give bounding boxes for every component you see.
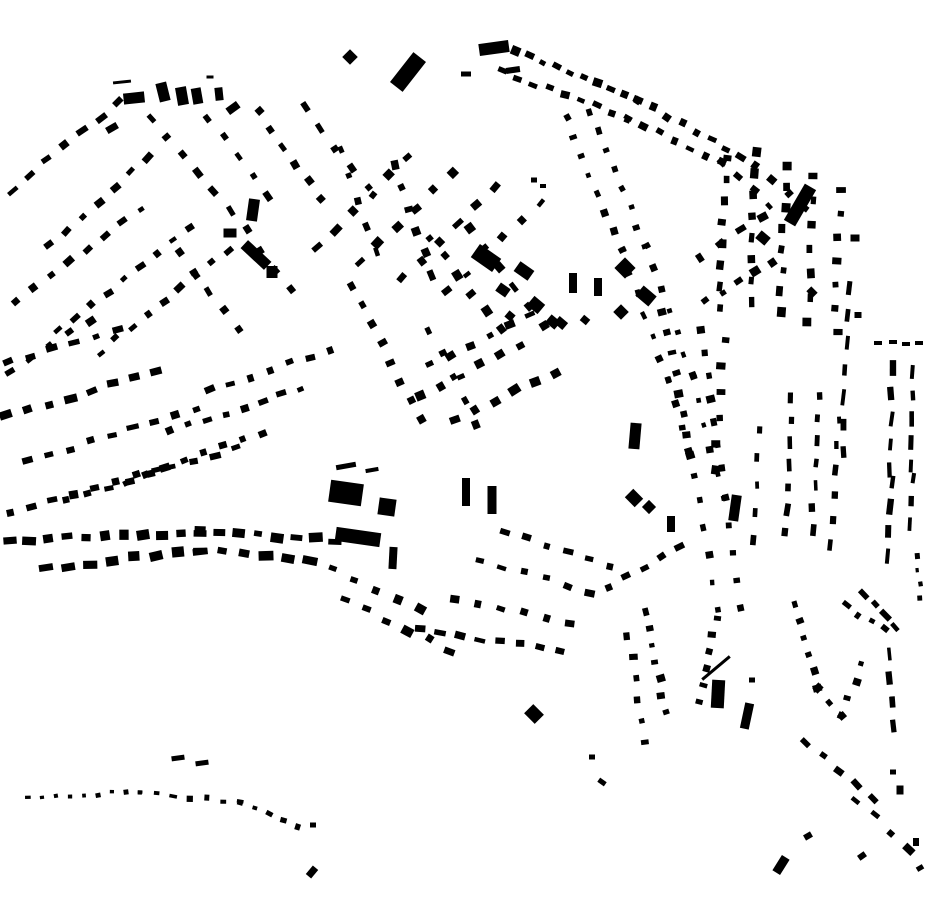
building <box>830 516 837 524</box>
building <box>242 224 252 235</box>
building <box>337 146 344 154</box>
building <box>214 87 223 101</box>
building <box>642 500 656 514</box>
building <box>870 810 880 819</box>
building <box>144 310 153 319</box>
building <box>646 625 654 632</box>
building <box>407 396 417 405</box>
building <box>913 838 919 846</box>
building <box>915 568 919 573</box>
building <box>716 362 726 370</box>
building <box>674 542 686 552</box>
building <box>354 197 362 206</box>
building <box>569 134 578 141</box>
building <box>241 240 272 270</box>
building <box>110 182 122 194</box>
building <box>178 149 188 159</box>
building <box>851 235 860 242</box>
building <box>618 185 626 193</box>
building <box>425 633 435 643</box>
building <box>474 600 482 609</box>
building <box>218 441 228 450</box>
building <box>802 318 811 327</box>
building <box>846 281 853 295</box>
building <box>710 580 715 586</box>
building <box>748 277 754 285</box>
building <box>507 383 521 397</box>
building <box>635 286 656 307</box>
building <box>733 577 740 583</box>
building <box>667 516 675 532</box>
building <box>730 550 736 556</box>
building <box>364 183 372 191</box>
building <box>783 183 790 191</box>
building <box>535 643 545 651</box>
building <box>280 817 288 824</box>
building <box>499 528 510 537</box>
building <box>887 462 892 477</box>
building <box>68 490 78 500</box>
building <box>266 366 274 375</box>
building <box>456 373 465 381</box>
building <box>169 236 177 244</box>
building <box>415 625 426 633</box>
building <box>706 372 712 379</box>
building <box>885 525 891 538</box>
building <box>710 418 718 427</box>
building <box>220 132 229 141</box>
building <box>232 528 245 538</box>
building <box>316 194 326 204</box>
building <box>585 172 591 178</box>
building <box>707 631 716 638</box>
building <box>509 282 519 293</box>
building <box>705 648 713 656</box>
building <box>25 796 31 799</box>
building <box>750 535 757 546</box>
building <box>735 224 747 235</box>
building <box>231 443 241 451</box>
building <box>7 186 19 197</box>
building <box>721 196 728 205</box>
building <box>350 576 359 584</box>
building <box>258 397 269 406</box>
building <box>670 136 679 145</box>
building <box>543 574 551 581</box>
building <box>290 159 301 170</box>
building <box>310 823 316 828</box>
building <box>204 794 209 800</box>
building <box>22 456 34 465</box>
building <box>171 546 184 557</box>
building <box>722 337 730 343</box>
building <box>638 121 649 132</box>
building <box>711 440 720 447</box>
building <box>202 416 212 424</box>
building <box>180 456 189 464</box>
building <box>542 614 551 623</box>
building <box>465 341 476 351</box>
building <box>416 414 427 425</box>
building <box>110 790 114 794</box>
building <box>165 426 175 436</box>
building <box>326 346 334 355</box>
building <box>300 101 311 113</box>
building <box>246 374 254 383</box>
building <box>715 607 721 613</box>
building <box>808 503 815 512</box>
building <box>550 368 562 380</box>
building <box>175 86 189 106</box>
building <box>382 168 395 181</box>
building <box>345 172 352 179</box>
building <box>833 766 845 777</box>
building <box>394 377 404 387</box>
building <box>885 671 893 685</box>
building <box>424 326 432 335</box>
building <box>918 581 923 586</box>
building <box>297 386 305 393</box>
building <box>639 718 645 724</box>
building <box>911 473 917 484</box>
building <box>222 411 230 418</box>
building <box>563 548 574 556</box>
building <box>840 389 846 406</box>
building <box>888 438 893 450</box>
building <box>390 52 426 92</box>
building <box>53 325 62 334</box>
building <box>105 556 119 567</box>
building <box>110 333 119 342</box>
building <box>397 183 405 191</box>
building <box>606 563 614 571</box>
building <box>377 497 396 516</box>
building <box>890 719 897 732</box>
building <box>246 198 260 221</box>
building <box>755 481 759 488</box>
building <box>795 617 804 625</box>
building <box>910 391 915 401</box>
building <box>632 224 640 231</box>
building <box>697 497 703 504</box>
building <box>262 190 273 202</box>
building <box>342 49 358 65</box>
building <box>858 588 870 600</box>
building <box>396 272 407 283</box>
building <box>373 247 380 257</box>
building <box>908 517 912 531</box>
building <box>135 261 147 272</box>
building <box>778 224 785 233</box>
building <box>827 539 833 551</box>
building <box>543 542 550 550</box>
building <box>836 187 846 193</box>
building <box>92 333 100 340</box>
building <box>70 313 81 324</box>
building <box>213 529 225 536</box>
building <box>474 637 486 644</box>
building <box>555 647 565 655</box>
building <box>577 153 585 160</box>
building <box>335 527 382 547</box>
building <box>655 354 664 363</box>
building <box>61 532 72 539</box>
building <box>607 109 616 118</box>
building <box>155 81 170 102</box>
building <box>655 127 664 136</box>
building <box>529 376 542 388</box>
building <box>889 696 895 708</box>
building <box>113 80 131 85</box>
building <box>66 446 75 454</box>
building <box>465 289 476 300</box>
building <box>270 532 284 543</box>
building <box>440 251 450 261</box>
building <box>25 353 36 362</box>
building <box>807 221 816 229</box>
building <box>915 553 920 559</box>
building <box>803 831 813 840</box>
building <box>123 91 145 104</box>
building <box>0 409 13 421</box>
building <box>692 128 701 137</box>
building <box>306 866 318 879</box>
building <box>388 547 397 569</box>
building <box>414 603 427 616</box>
building <box>489 181 501 193</box>
building <box>600 208 609 217</box>
building <box>355 257 366 267</box>
building <box>565 620 575 628</box>
building <box>832 464 839 475</box>
building <box>857 851 867 861</box>
building <box>613 304 629 320</box>
building <box>204 384 216 394</box>
building <box>915 341 923 345</box>
building <box>788 392 793 403</box>
building <box>240 404 250 413</box>
building <box>783 503 791 516</box>
building <box>678 118 687 128</box>
building <box>672 369 681 377</box>
building <box>657 308 667 317</box>
building <box>871 599 880 608</box>
building <box>733 276 743 285</box>
building <box>810 524 817 536</box>
building <box>58 139 69 150</box>
building <box>717 304 723 312</box>
building <box>275 389 286 397</box>
building <box>521 533 532 542</box>
building <box>199 448 207 456</box>
building <box>841 419 847 431</box>
building <box>142 151 154 164</box>
building <box>825 699 833 707</box>
building <box>192 167 204 179</box>
building <box>749 678 755 683</box>
building <box>589 755 595 760</box>
building <box>716 281 723 291</box>
building <box>11 297 21 307</box>
building <box>43 239 54 250</box>
building <box>112 325 124 334</box>
building <box>290 534 302 541</box>
building <box>908 435 913 450</box>
building <box>393 594 404 606</box>
building <box>842 600 852 610</box>
building <box>252 805 258 810</box>
building <box>305 354 316 362</box>
building <box>733 171 743 181</box>
building <box>371 586 380 595</box>
building <box>902 342 910 346</box>
building <box>814 480 818 490</box>
building <box>224 229 237 238</box>
building <box>426 269 436 281</box>
building <box>756 211 768 223</box>
building <box>381 617 391 626</box>
building <box>286 284 296 294</box>
building <box>765 202 773 210</box>
building <box>258 551 273 561</box>
building <box>832 282 838 288</box>
building <box>909 460 913 473</box>
building <box>916 864 925 872</box>
building <box>496 605 506 613</box>
building <box>656 674 666 683</box>
building <box>149 366 162 376</box>
building <box>402 152 412 162</box>
building <box>706 394 716 403</box>
building <box>170 410 181 420</box>
building <box>126 423 139 431</box>
building <box>778 245 785 254</box>
map-canvas <box>0 0 930 924</box>
building <box>874 341 882 345</box>
building <box>614 257 635 278</box>
building <box>377 338 388 348</box>
building <box>154 791 160 795</box>
building <box>831 305 839 312</box>
building <box>514 261 535 281</box>
building <box>817 392 823 400</box>
building <box>516 640 525 647</box>
building <box>97 349 105 357</box>
building <box>24 170 35 181</box>
building <box>584 589 595 598</box>
building <box>106 378 119 387</box>
building <box>414 390 426 402</box>
building <box>711 680 725 709</box>
building <box>82 793 86 797</box>
building <box>688 371 697 381</box>
building <box>685 145 694 152</box>
building <box>814 435 819 446</box>
building <box>169 794 177 799</box>
building <box>411 226 422 237</box>
building <box>740 702 754 729</box>
building <box>880 624 890 633</box>
building <box>204 286 213 297</box>
building <box>478 40 509 56</box>
building <box>766 174 778 185</box>
building <box>810 666 819 676</box>
building <box>610 226 619 235</box>
building <box>767 257 778 268</box>
building <box>156 531 168 540</box>
building <box>45 401 54 410</box>
building <box>2 357 13 367</box>
building <box>889 340 897 344</box>
building <box>656 552 666 562</box>
building <box>594 190 601 198</box>
building <box>887 647 892 660</box>
building <box>495 637 505 644</box>
building <box>695 252 705 263</box>
building <box>463 271 471 279</box>
building <box>565 69 574 77</box>
building <box>777 307 786 318</box>
building <box>780 267 786 274</box>
building <box>278 142 287 152</box>
building <box>897 786 904 795</box>
building <box>86 386 98 396</box>
building <box>879 609 892 622</box>
building <box>86 299 96 309</box>
building <box>425 360 434 368</box>
building <box>783 162 792 171</box>
building <box>362 222 371 232</box>
building <box>454 631 466 641</box>
building <box>138 790 142 794</box>
building <box>909 411 914 426</box>
building <box>662 709 670 716</box>
building <box>833 329 842 335</box>
building <box>714 615 722 621</box>
building <box>41 154 52 164</box>
building <box>207 257 216 266</box>
building <box>569 273 577 293</box>
building <box>217 547 227 555</box>
building <box>701 422 707 428</box>
building <box>640 311 647 320</box>
building <box>772 855 789 875</box>
building <box>805 651 812 658</box>
building <box>451 269 463 282</box>
building <box>128 372 140 382</box>
building <box>917 595 922 600</box>
building <box>254 530 263 537</box>
building <box>832 257 842 264</box>
building <box>680 410 688 418</box>
building <box>832 491 839 499</box>
building <box>26 502 38 511</box>
building <box>606 85 616 93</box>
building <box>94 197 106 209</box>
building <box>531 178 537 183</box>
building <box>452 218 464 230</box>
building <box>104 485 114 492</box>
building <box>887 387 894 401</box>
building <box>475 557 484 564</box>
building <box>735 152 747 163</box>
building <box>309 532 323 542</box>
building <box>851 796 861 805</box>
building <box>90 484 100 492</box>
building <box>207 76 214 79</box>
building <box>225 101 240 115</box>
building <box>842 364 847 375</box>
